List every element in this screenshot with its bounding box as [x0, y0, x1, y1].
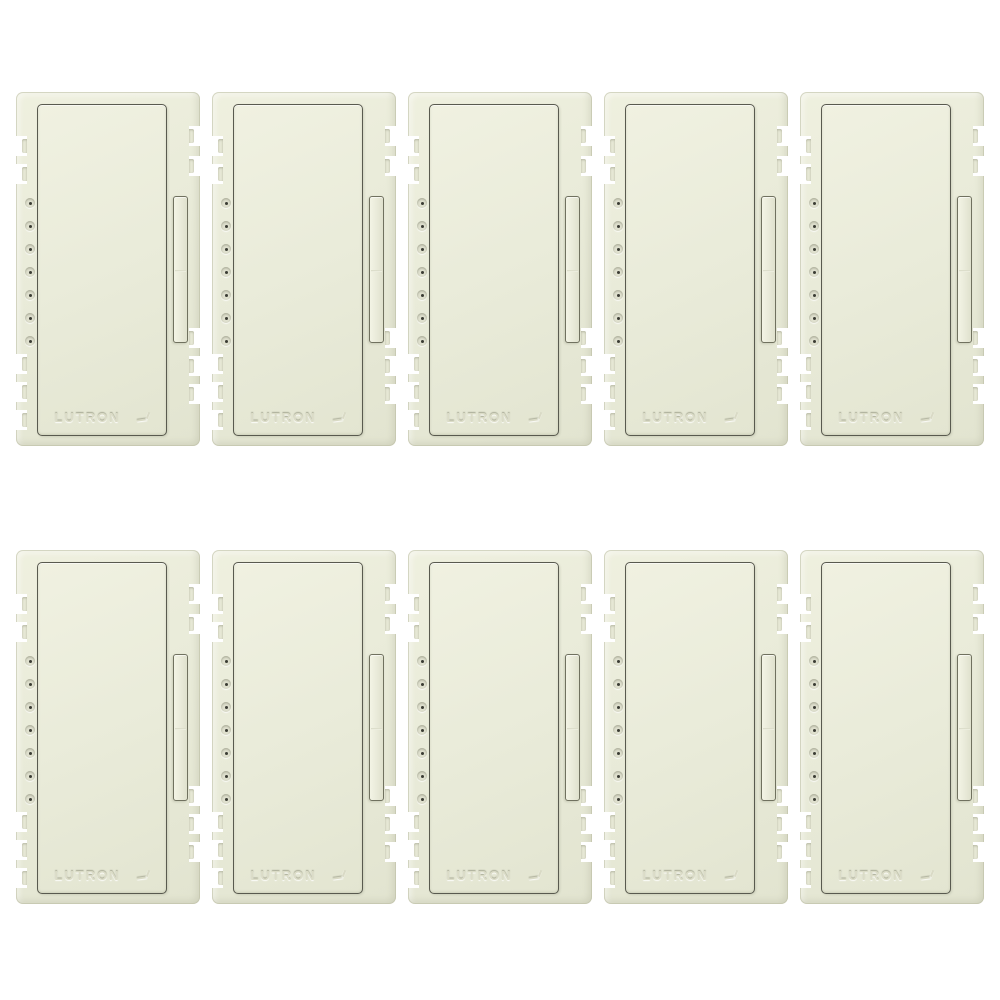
- brand-label: LUTRON: [250, 410, 316, 425]
- brand-label: LUTRON: [642, 868, 708, 883]
- breakaway-tab-notch: [777, 614, 789, 634]
- lutron-emblem-icon: [529, 412, 542, 423]
- brand-embossing: LUTRON: [38, 868, 166, 883]
- brand-label: LUTRON: [54, 868, 120, 883]
- led-indicator-dot: [613, 244, 623, 254]
- led-indicator-dot: [809, 794, 819, 804]
- breakaway-tab-notch: [211, 410, 223, 430]
- led-indicator-column: [221, 198, 231, 346]
- breakaway-tab-notch: [799, 840, 811, 860]
- breakaway-tab-notch: [973, 126, 985, 146]
- breakaway-tab-notch: [407, 840, 419, 860]
- led-indicator-dot: [25, 794, 35, 804]
- led-indicator-dot: [417, 267, 427, 277]
- breakaway-tab-notch: [15, 622, 27, 642]
- rocker-button: LUTRON: [821, 562, 951, 894]
- dimmer-slider: [173, 654, 188, 801]
- breakaway-tab-notch: [603, 594, 615, 614]
- rocker-button: LUTRON: [821, 104, 951, 436]
- rocker-button: LUTRON: [37, 104, 167, 436]
- led-indicator-dot: [221, 794, 231, 804]
- breakaway-tab-notch: [777, 584, 789, 604]
- breakaway-tab-notch: [799, 164, 811, 184]
- dimmer-color-kit-unit: LUTRON: [800, 550, 984, 904]
- dimmer-color-kit-unit: LUTRON: [16, 550, 200, 904]
- brand-embossing: LUTRON: [822, 410, 950, 425]
- breakaway-tab-notch: [799, 354, 811, 374]
- brand-label: LUTRON: [54, 410, 120, 425]
- dimmer-color-kit-unit: LUTRON: [408, 92, 592, 446]
- breakaway-tab-notch: [799, 136, 811, 156]
- led-indicator-dot: [417, 198, 427, 208]
- breakaway-tab-notch: [385, 384, 397, 404]
- led-indicator-dot: [25, 267, 35, 277]
- led-indicator-dot: [25, 244, 35, 254]
- breakaway-tab-notch: [15, 812, 27, 832]
- breakaway-tab-notch: [973, 814, 985, 834]
- breakaway-tab-notch: [799, 622, 811, 642]
- dimmer-slider: [173, 196, 188, 343]
- rocker-button: LUTRON: [625, 562, 755, 894]
- breakaway-tab-notch: [603, 840, 615, 860]
- led-indicator-dot: [25, 336, 35, 346]
- breakaway-tab-notch: [211, 354, 223, 374]
- led-indicator-dot: [25, 702, 35, 712]
- led-indicator-dot: [417, 725, 427, 735]
- dimmer-slider: [761, 196, 776, 343]
- breakaway-tab-notch: [581, 384, 593, 404]
- breakaway-tab-notch: [407, 410, 419, 430]
- led-indicator-dot: [809, 244, 819, 254]
- breakaway-tab-notch: [385, 614, 397, 634]
- breakaway-tab-notch: [603, 354, 615, 374]
- led-indicator-dot: [25, 771, 35, 781]
- led-indicator-dot: [417, 336, 427, 346]
- led-indicator-dot: [613, 313, 623, 323]
- breakaway-tab-notch: [581, 156, 593, 176]
- led-indicator-column: [25, 656, 35, 804]
- breakaway-tab-notch: [407, 812, 419, 832]
- led-indicator-dot: [417, 748, 427, 758]
- led-indicator-dot: [221, 198, 231, 208]
- dimmer-color-kit-unit: LUTRON: [408, 550, 592, 904]
- breakaway-tab-notch: [581, 356, 593, 376]
- breakaway-tab-notch: [973, 786, 985, 806]
- led-indicator-dot: [809, 313, 819, 323]
- led-indicator-dot: [809, 725, 819, 735]
- breakaway-tab-notch: [189, 814, 201, 834]
- breakaway-tab-notch: [973, 356, 985, 376]
- dimmer-slider: [369, 654, 384, 801]
- rocker-button: LUTRON: [429, 562, 559, 894]
- led-indicator-dot: [613, 679, 623, 689]
- dimmer-color-kit-unit: LUTRON: [604, 92, 788, 446]
- led-indicator-dot: [25, 221, 35, 231]
- breakaway-tab-notch: [407, 136, 419, 156]
- breakaway-tab-notch: [15, 840, 27, 860]
- breakaway-tab-notch: [777, 126, 789, 146]
- led-indicator-dot: [221, 313, 231, 323]
- lutron-emblem-icon: [725, 870, 738, 881]
- led-indicator-column: [25, 198, 35, 346]
- led-indicator-dot: [613, 290, 623, 300]
- breakaway-tab-notch: [385, 356, 397, 376]
- led-indicator-dot: [613, 336, 623, 346]
- breakaway-tab-notch: [15, 594, 27, 614]
- breakaway-tab-notch: [777, 786, 789, 806]
- led-indicator-dot: [613, 794, 623, 804]
- led-indicator-column: [613, 198, 623, 346]
- led-indicator-column: [809, 656, 819, 804]
- lutron-emblem-icon: [725, 412, 738, 423]
- breakaway-tab-notch: [973, 328, 985, 348]
- breakaway-tab-notch: [385, 814, 397, 834]
- breakaway-tab-notch: [15, 164, 27, 184]
- rocker-button: LUTRON: [233, 562, 363, 894]
- breakaway-tab-notch: [581, 842, 593, 862]
- led-indicator-dot: [221, 656, 231, 666]
- led-indicator-dot: [417, 221, 427, 231]
- brand-label: LUTRON: [446, 868, 512, 883]
- dimmer-slider: [957, 196, 972, 343]
- breakaway-tab-notch: [799, 868, 811, 888]
- breakaway-tab-notch: [603, 136, 615, 156]
- breakaway-tab-notch: [385, 328, 397, 348]
- breakaway-tab-notch: [799, 382, 811, 402]
- led-indicator-dot: [809, 221, 819, 231]
- lutron-emblem-icon: [333, 870, 346, 881]
- breakaway-tab-notch: [189, 842, 201, 862]
- rocker-button: LUTRON: [625, 104, 755, 436]
- led-indicator-dot: [417, 679, 427, 689]
- led-indicator-dot: [221, 290, 231, 300]
- breakaway-tab-notch: [581, 786, 593, 806]
- led-indicator-dot: [809, 198, 819, 208]
- lutron-emblem-icon: [137, 870, 150, 881]
- breakaway-tab-notch: [385, 584, 397, 604]
- led-indicator-dot: [613, 771, 623, 781]
- brand-label: LUTRON: [250, 868, 316, 883]
- breakaway-tab-notch: [211, 164, 223, 184]
- breakaway-tab-notch: [603, 164, 615, 184]
- dimmer-slider: [565, 654, 580, 801]
- brand-embossing: LUTRON: [626, 410, 754, 425]
- dimmer-slider: [761, 654, 776, 801]
- breakaway-tab-notch: [777, 328, 789, 348]
- brand-label: LUTRON: [838, 410, 904, 425]
- breakaway-tab-notch: [211, 622, 223, 642]
- led-indicator-dot: [25, 656, 35, 666]
- led-indicator-column: [613, 656, 623, 804]
- breakaway-tab-notch: [407, 868, 419, 888]
- breakaway-tab-notch: [189, 356, 201, 376]
- rocker-button: LUTRON: [37, 562, 167, 894]
- led-indicator-dot: [25, 748, 35, 758]
- lutron-emblem-icon: [529, 870, 542, 881]
- breakaway-tab-notch: [211, 868, 223, 888]
- led-indicator-dot: [25, 725, 35, 735]
- breakaway-tab-notch: [15, 354, 27, 374]
- led-indicator-dot: [613, 702, 623, 712]
- breakaway-tab-notch: [211, 136, 223, 156]
- brand-embossing: LUTRON: [430, 868, 558, 883]
- breakaway-tab-notch: [799, 812, 811, 832]
- brand-embossing: LUTRON: [822, 868, 950, 883]
- dimmer-color-kit-unit: LUTRON: [604, 550, 788, 904]
- breakaway-tab-notch: [15, 868, 27, 888]
- led-indicator-dot: [809, 656, 819, 666]
- brand-label: LUTRON: [446, 410, 512, 425]
- led-indicator-dot: [417, 656, 427, 666]
- breakaway-tab-notch: [407, 594, 419, 614]
- led-indicator-dot: [613, 267, 623, 277]
- led-indicator-dot: [809, 290, 819, 300]
- breakaway-tab-notch: [603, 868, 615, 888]
- breakaway-tab-notch: [973, 614, 985, 634]
- led-indicator-dot: [809, 702, 819, 712]
- led-indicator-dot: [221, 244, 231, 254]
- led-indicator-dot: [809, 679, 819, 689]
- dimmer-slider: [369, 196, 384, 343]
- brand-label: LUTRON: [642, 410, 708, 425]
- breakaway-tab-notch: [385, 786, 397, 806]
- led-indicator-dot: [809, 771, 819, 781]
- led-indicator-dot: [221, 267, 231, 277]
- led-indicator-dot: [809, 748, 819, 758]
- led-indicator-column: [417, 198, 427, 346]
- led-indicator-dot: [221, 702, 231, 712]
- breakaway-tab-notch: [189, 584, 201, 604]
- product-photo: LUTRON LUTRON: [0, 0, 1000, 1000]
- led-indicator-dot: [221, 679, 231, 689]
- breakaway-tab-notch: [211, 840, 223, 860]
- led-indicator-dot: [25, 290, 35, 300]
- breakaway-tab-notch: [385, 126, 397, 146]
- breakaway-tab-notch: [581, 126, 593, 146]
- product-grid: LUTRON LUTRON: [16, 92, 984, 904]
- breakaway-tab-notch: [973, 156, 985, 176]
- lutron-emblem-icon: [921, 870, 934, 881]
- brand-embossing: LUTRON: [430, 410, 558, 425]
- led-indicator-dot: [809, 336, 819, 346]
- breakaway-tab-notch: [15, 410, 27, 430]
- led-indicator-dot: [221, 748, 231, 758]
- led-indicator-dot: [417, 794, 427, 804]
- rocker-button: LUTRON: [429, 104, 559, 436]
- led-indicator-dot: [417, 313, 427, 323]
- breakaway-tab-notch: [581, 814, 593, 834]
- brand-label: LUTRON: [838, 868, 904, 883]
- breakaway-tab-notch: [15, 382, 27, 402]
- breakaway-tab-notch: [581, 328, 593, 348]
- brand-embossing: LUTRON: [234, 410, 362, 425]
- led-indicator-dot: [417, 771, 427, 781]
- breakaway-tab-notch: [973, 384, 985, 404]
- lutron-emblem-icon: [921, 412, 934, 423]
- led-indicator-dot: [613, 198, 623, 208]
- breakaway-tab-notch: [603, 812, 615, 832]
- led-indicator-column: [417, 656, 427, 804]
- breakaway-tab-notch: [407, 164, 419, 184]
- led-indicator-dot: [809, 267, 819, 277]
- dimmer-color-kit-unit: LUTRON: [212, 92, 396, 446]
- led-indicator-dot: [613, 748, 623, 758]
- brand-embossing: LUTRON: [38, 410, 166, 425]
- breakaway-tab-notch: [603, 410, 615, 430]
- breakaway-tab-notch: [407, 622, 419, 642]
- breakaway-tab-notch: [189, 786, 201, 806]
- brand-embossing: LUTRON: [234, 868, 362, 883]
- breakaway-tab-notch: [211, 382, 223, 402]
- breakaway-tab-notch: [189, 614, 201, 634]
- led-indicator-dot: [613, 221, 623, 231]
- breakaway-tab-notch: [799, 594, 811, 614]
- led-indicator-column: [809, 198, 819, 346]
- led-indicator-dot: [613, 725, 623, 735]
- breakaway-tab-notch: [777, 384, 789, 404]
- dimmer-color-kit-unit: LUTRON: [212, 550, 396, 904]
- breakaway-tab-notch: [211, 594, 223, 614]
- breakaway-tab-notch: [15, 136, 27, 156]
- led-indicator-dot: [417, 702, 427, 712]
- breakaway-tab-notch: [777, 356, 789, 376]
- led-indicator-dot: [25, 198, 35, 208]
- led-indicator-dot: [221, 221, 231, 231]
- lutron-emblem-icon: [137, 412, 150, 423]
- breakaway-tab-notch: [189, 384, 201, 404]
- dimmer-slider: [565, 196, 580, 343]
- breakaway-tab-notch: [603, 382, 615, 402]
- led-indicator-dot: [613, 656, 623, 666]
- led-indicator-dot: [25, 679, 35, 689]
- led-indicator-dot: [221, 771, 231, 781]
- breakaway-tab-notch: [799, 410, 811, 430]
- breakaway-tab-notch: [777, 814, 789, 834]
- breakaway-tab-notch: [385, 156, 397, 176]
- led-indicator-dot: [221, 336, 231, 346]
- led-indicator-dot: [417, 290, 427, 300]
- breakaway-tab-notch: [407, 354, 419, 374]
- breakaway-tab-notch: [973, 584, 985, 604]
- rocker-button: LUTRON: [233, 104, 363, 436]
- breakaway-tab-notch: [581, 614, 593, 634]
- led-indicator-dot: [25, 313, 35, 323]
- brand-embossing: LUTRON: [626, 868, 754, 883]
- breakaway-tab-notch: [189, 328, 201, 348]
- breakaway-tab-notch: [385, 842, 397, 862]
- dimmer-color-kit-unit: LUTRON: [16, 92, 200, 446]
- breakaway-tab-notch: [407, 382, 419, 402]
- breakaway-tab-notch: [211, 812, 223, 832]
- led-indicator-dot: [417, 244, 427, 254]
- breakaway-tab-notch: [603, 622, 615, 642]
- breakaway-tab-notch: [973, 842, 985, 862]
- dimmer-color-kit-unit: LUTRON: [800, 92, 984, 446]
- breakaway-tab-notch: [189, 126, 201, 146]
- breakaway-tab-notch: [777, 156, 789, 176]
- led-indicator-column: [221, 656, 231, 804]
- dimmer-slider: [957, 654, 972, 801]
- lutron-emblem-icon: [333, 412, 346, 423]
- breakaway-tab-notch: [189, 156, 201, 176]
- breakaway-tab-notch: [777, 842, 789, 862]
- led-indicator-dot: [221, 725, 231, 735]
- breakaway-tab-notch: [581, 584, 593, 604]
